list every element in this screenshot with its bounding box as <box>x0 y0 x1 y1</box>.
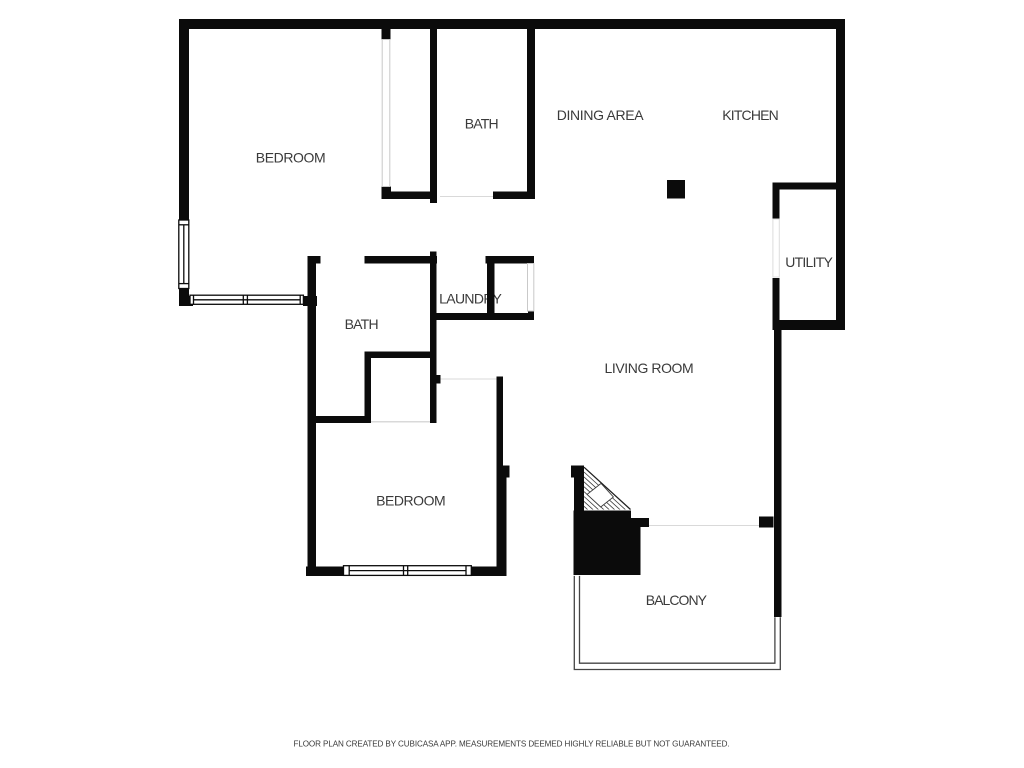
svg-text:FLOOR PLAN CREATED BY CUBICASA: FLOOR PLAN CREATED BY CUBICASA APP. MEAS… <box>293 739 729 748</box>
svg-text:BEDROOM: BEDROOM <box>376 493 445 509</box>
svg-text:BALCONY: BALCONY <box>646 592 708 608</box>
svg-text:BATH: BATH <box>345 316 378 332</box>
svg-text:KITCHEN: KITCHEN <box>722 107 778 123</box>
svg-text:BEDROOM: BEDROOM <box>256 149 325 165</box>
svg-text:BATH: BATH <box>465 115 498 131</box>
svg-text:LIVING ROOM: LIVING ROOM <box>605 360 694 376</box>
svg-text:UTILITY: UTILITY <box>785 254 833 270</box>
svg-text:DINING AREA: DINING AREA <box>557 107 645 123</box>
